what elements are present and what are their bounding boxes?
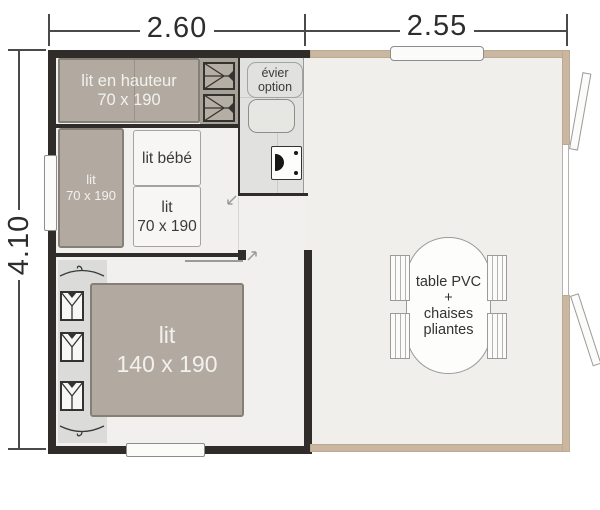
floor-bed-line1: lit: [161, 198, 172, 217]
baby-bed: lit bébé: [133, 130, 201, 186]
side-bed-line1: lit: [86, 172, 95, 188]
stove-icon: [271, 146, 302, 180]
partition-wall-cap: [238, 250, 246, 260]
wall-right-lower: [304, 250, 312, 454]
shirt-icon: [60, 291, 84, 321]
floor-bed: lit 70 x 190: [133, 186, 201, 247]
door-leaf-lower: [570, 293, 600, 366]
shirt-icon: [203, 62, 235, 90]
folding-chair: [487, 255, 507, 301]
bunk-bed: lit en hauteur 70 x 190: [58, 58, 200, 123]
wardrobe-top: [200, 58, 238, 125]
dimension-width-right: 2.55: [400, 8, 474, 44]
sink-icon: [248, 99, 295, 133]
table-line2: +: [444, 290, 452, 306]
terrace-open-side: [562, 145, 563, 295]
terrace-wall-right-upper: [562, 50, 570, 145]
sink-option-line2: option: [258, 80, 292, 94]
bunk-bed-line2: 70 x 190: [97, 91, 160, 110]
partition-wall: [56, 253, 242, 257]
side-bed: lit 70 x 190: [58, 128, 124, 248]
hanger-icon: [58, 262, 106, 278]
baby-bed-label: lit bébé: [142, 149, 192, 168]
kitchen-wall-bottom: [238, 193, 308, 196]
side-bed-line2: 70 x 190: [66, 188, 116, 204]
folding-chair: [390, 255, 410, 301]
folding-chair: [390, 313, 410, 359]
master-bed: lit 140 x 190: [90, 283, 244, 417]
floor-bed-line2: 70 x 190: [137, 217, 196, 236]
table-line4: pliantes: [424, 322, 474, 338]
dimension-tick: [566, 14, 568, 46]
folding-chair: [487, 313, 507, 359]
wall-left: [48, 50, 56, 454]
door-direction-icon: [246, 250, 258, 262]
dimension-tick: [48, 14, 50, 46]
table-line3: chaises: [424, 306, 473, 322]
dimension-tick: [304, 14, 306, 46]
hallway-line: [238, 197, 239, 250]
master-bed-line1: lit: [159, 321, 176, 350]
terrace-window: [390, 46, 484, 61]
door-leaf-upper: [569, 72, 591, 150]
sliding-door: [185, 260, 243, 262]
door-direction-icon: [226, 194, 238, 206]
bottom-window: [126, 443, 205, 457]
terrace-wall-bottom: [310, 444, 570, 452]
side-window: [44, 155, 57, 231]
wall-top: [48, 50, 310, 58]
bed-divider: [134, 60, 135, 121]
dimension-tick: [8, 49, 46, 51]
shirt-icon: [203, 94, 235, 122]
dimension-width-left: 2.60: [140, 10, 214, 46]
hanger-icon: [58, 424, 106, 440]
dimension-tick: [8, 448, 46, 450]
sink-option-line1: évier: [261, 66, 288, 80]
shirt-icon: [60, 381, 84, 411]
terrace-open-side: [568, 145, 569, 295]
terrace-wall-right-lower: [562, 295, 570, 452]
dimension-height: 4.10: [0, 210, 39, 280]
table-line1: table PVC: [416, 274, 481, 290]
bunk-bed-line1: lit en hauteur: [81, 72, 176, 91]
shirt-icon: [60, 332, 84, 362]
dimension-line-top: [49, 30, 568, 32]
master-bed-line2: 140 x 190: [116, 350, 217, 379]
counter-edge: [303, 58, 304, 195]
table: table PVC + chaises pliantes: [406, 237, 491, 374]
sink-option-label: évier option: [247, 62, 303, 98]
floor-plan: 2.60 2.55 4.10 évier option lit en haute…: [0, 0, 600, 510]
